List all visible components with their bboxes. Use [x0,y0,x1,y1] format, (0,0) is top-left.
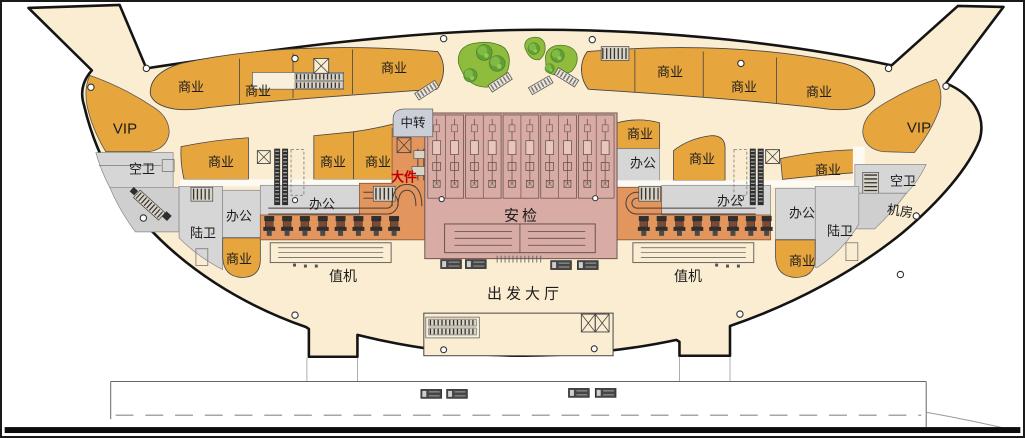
zone-label-vip: VIP [113,122,137,137]
zone-label-air-wc: 空卫 [129,163,155,176]
zone-label-land-wc: 陆卫 [190,227,216,240]
zone-label-commercial: 商业 [689,153,715,166]
zone-label-office: 办公 [630,157,656,170]
curbside-road [111,357,1018,431]
zone-label-commercial: 商业 [815,164,841,177]
terminal-floor-plan: 商业 商业 商业 商业 商业 商业 商业 商业 商业 商业 商业 商业 商业 商… [0,0,1025,438]
zone-label-security-check: 安检 [504,209,540,224]
zone-label-check-in: 值机 [674,269,702,283]
zone-label-office: 办公 [717,195,743,208]
zone-label-transfer: 中转 [400,117,425,130]
zone-label-commercial: 商业 [245,85,271,98]
zone-label-office: 办公 [226,210,252,223]
zone-label-office: 办公 [309,198,335,211]
checkin-island-right [617,185,771,239]
zone-label-commercial: 商业 [789,255,815,268]
zone-label-commercial: 商业 [657,66,683,79]
zone-label-check-in: 值机 [329,269,357,283]
zone-label-commercial: 商业 [226,253,252,266]
entrance-lobby [424,313,613,356]
zone-label-commercial: 商业 [365,156,391,169]
zone-label-office: 办公 [789,207,815,220]
stairs-upper-right-band [601,47,629,61]
frame-bottom-bar [5,427,1021,433]
zone-label-commercial: 商业 [381,62,407,75]
zone-label-commercial: 商业 [208,156,234,169]
security-check-zone [425,113,617,263]
zone-label-land-wc: 陆卫 [827,225,853,238]
zone-label-commercial: 商业 [806,86,832,99]
escalator-zone-left [110,184,179,232]
zone-label-commercial: 商业 [731,81,757,94]
zone-label-oversize-baggage: 大件 [391,171,417,184]
zone-label-air-wc: 空卫 [890,175,916,188]
zone-label-commercial: 商业 [178,81,204,94]
zone-label-machine-room: 机房 [886,203,914,219]
zone-label-commercial: 商业 [320,156,346,169]
zone-label-vip: VIP [907,121,931,136]
zone-label-commercial: 商业 [627,128,653,141]
zone-label-departure-hall: 出发大厅 [487,287,563,302]
